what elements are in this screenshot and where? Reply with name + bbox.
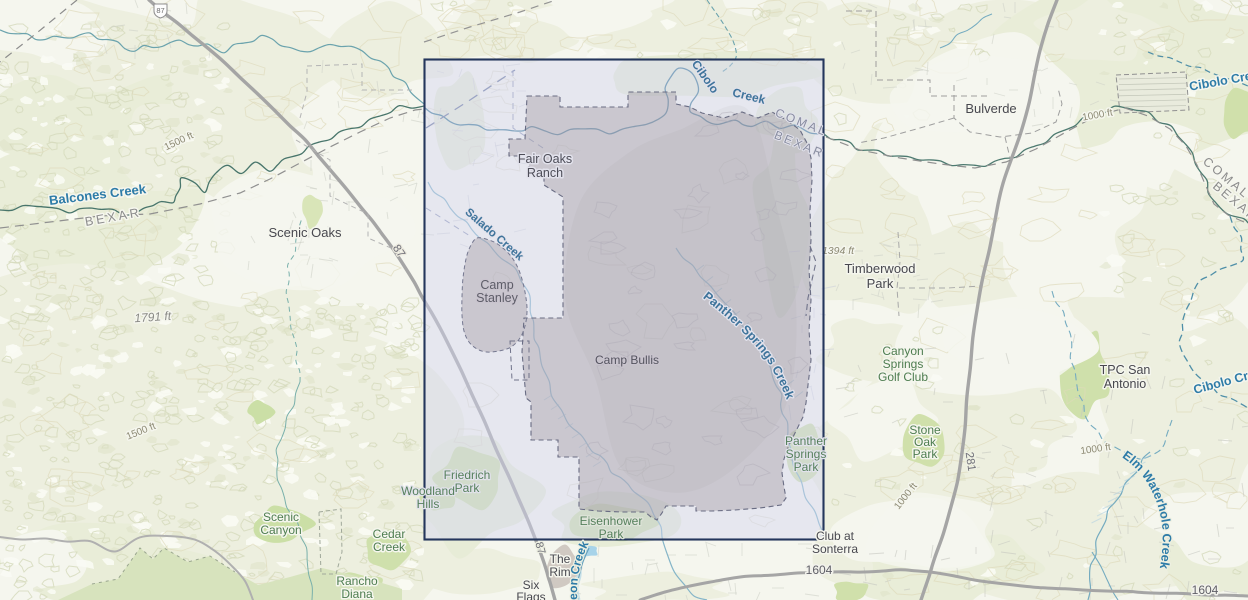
svg-text:Antonio: Antonio <box>1104 377 1146 391</box>
svg-text:Scenic: Scenic <box>263 510 299 524</box>
svg-text:Fair Oaks: Fair Oaks <box>518 152 572 166</box>
svg-text:1791 ft: 1791 ft <box>134 309 172 326</box>
svg-text:Park: Park <box>867 276 894 291</box>
svg-text:Canyon: Canyon <box>260 523 301 537</box>
svg-text:Scenic Oaks: Scenic Oaks <box>269 225 342 240</box>
svg-text:Park: Park <box>913 447 939 461</box>
svg-text:1394 ft: 1394 ft <box>822 245 855 257</box>
svg-text:Park: Park <box>794 460 820 474</box>
svg-text:Park: Park <box>599 527 625 541</box>
svg-text:87: 87 <box>156 6 164 15</box>
svg-text:Golf Club: Golf Club <box>878 370 928 384</box>
svg-text:Rancho: Rancho <box>336 574 378 588</box>
svg-text:Hills: Hills <box>417 497 440 511</box>
svg-text:Sonterra: Sonterra <box>812 542 858 556</box>
svg-text:Canyon: Canyon <box>882 344 923 358</box>
svg-text:Bulverde: Bulverde <box>965 101 1016 116</box>
svg-text:Woodland: Woodland <box>401 484 455 498</box>
svg-text:Springs: Springs <box>786 447 827 461</box>
svg-text:1604: 1604 <box>1192 583 1219 597</box>
svg-text:Diana: Diana <box>341 587 373 600</box>
svg-text:Camp: Camp <box>480 278 513 292</box>
svg-text:Park: Park <box>455 481 481 495</box>
svg-text:Panther: Panther <box>785 434 827 448</box>
svg-text:Springs: Springs <box>883 357 924 371</box>
svg-text:Club at: Club at <box>816 529 855 543</box>
svg-text:Ranch: Ranch <box>527 166 563 180</box>
svg-text:Timberwood: Timberwood <box>844 261 915 276</box>
svg-text:Eisenhower: Eisenhower <box>580 514 643 528</box>
svg-text:TPC San: TPC San <box>1100 363 1151 377</box>
svg-text:Friedrich: Friedrich <box>444 468 491 482</box>
svg-text:The: The <box>550 552 571 566</box>
svg-text:Flags: Flags <box>516 590 545 600</box>
svg-text:Rim: Rim <box>549 565 570 579</box>
svg-text:Stanley: Stanley <box>476 291 518 305</box>
svg-text:Cedar: Cedar <box>373 527 406 541</box>
svg-text:Camp Bullis: Camp Bullis <box>595 353 659 367</box>
svg-text:Creek: Creek <box>373 540 406 554</box>
svg-text:1604: 1604 <box>806 563 833 577</box>
